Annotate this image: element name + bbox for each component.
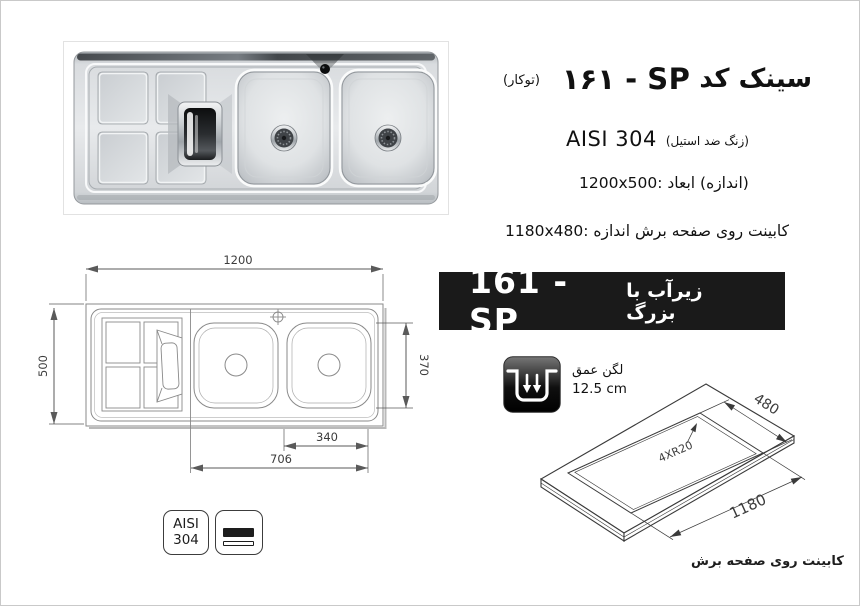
dim-500: 500 xyxy=(36,355,50,377)
catalog-page: (توکار) ۱۶۱ - SP سینک کد AISI 304 (استیل… xyxy=(0,0,860,606)
sheet-thick-bar-icon xyxy=(223,528,254,537)
drain-left xyxy=(271,125,297,151)
banner-feature: با‎ زیرآب‎ بزرگ xyxy=(626,278,755,324)
product-title: (توکار) ۱۶۱ - SP سینک کد xyxy=(503,57,812,101)
steel-badge-line1: AISI xyxy=(173,517,199,532)
dim-706: 706 xyxy=(270,452,292,466)
dim-370: 370 xyxy=(417,354,431,376)
steel-badge-line2: 304 xyxy=(173,533,199,548)
banner-code: 161 - SP xyxy=(469,262,626,340)
waste-chute xyxy=(168,94,232,174)
steel-note: (استیل‎ ضد‎ زنگ) xyxy=(666,131,749,148)
cutout-dimensions: 1180x480: اندازه‎ برش‎ صفحه‎ روی‎ کابینت xyxy=(505,222,789,240)
feature-banner: 161 - SP با‎ زیرآب‎ بزرگ xyxy=(439,272,785,330)
steel-grade-badge: AISI 304 xyxy=(163,510,209,555)
cutout-3d-drawing: 480 1180 4XR20 xyxy=(521,371,821,576)
dim-1180: 1180 xyxy=(727,490,769,522)
mount-type: (توکار) xyxy=(503,71,540,88)
sheet-icon-badge xyxy=(215,510,263,555)
dim-340: 340 xyxy=(316,430,338,444)
sink-photo xyxy=(63,41,449,215)
overall-dimensions: 1200x500: ابعاد‎ (اندازه) xyxy=(579,174,749,192)
dim-1200: 1200 xyxy=(223,253,252,267)
product-code: ۱۶۱ - SP xyxy=(562,62,690,96)
steel-grade: AISI 304 xyxy=(566,127,657,151)
sheet-thin-bar-icon xyxy=(223,541,254,546)
steel-spec: AISI 304 (استیل‎ ضد‎ زنگ) xyxy=(566,127,749,151)
product-name: سینک کد xyxy=(699,64,812,94)
cutout-caption: برش‎ صفحه‎ روی‎ کابینت xyxy=(691,554,821,569)
plan-view-drawing: 1200 500 370 340 706 xyxy=(36,251,436,486)
drain-right xyxy=(375,125,401,151)
